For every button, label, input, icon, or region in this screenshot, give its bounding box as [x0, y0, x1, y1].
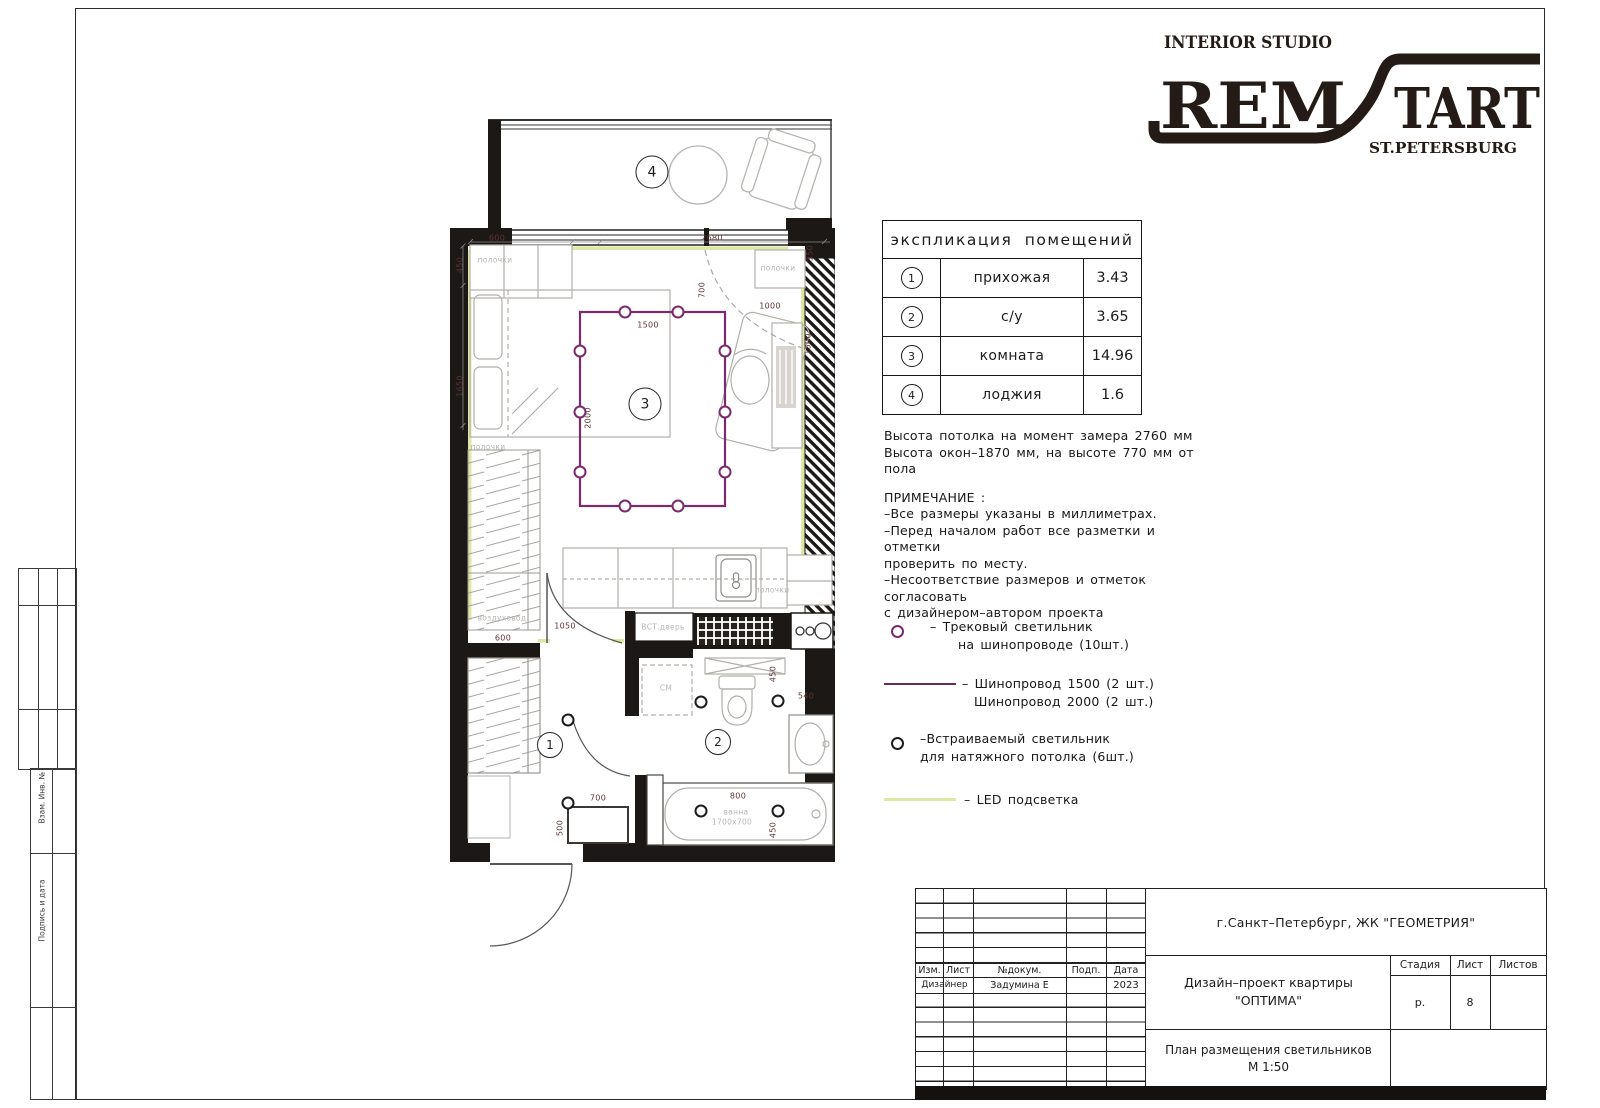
room-name: с/у: [941, 298, 1083, 336]
dimension-label: 1500: [637, 321, 659, 330]
explication-title: экспликация помещений: [883, 221, 1141, 259]
project-location: г.Санкт–Петербург, ЖК "ГЕОМЕТРИЯ": [1146, 889, 1546, 955]
busbar-legend-icon: [884, 683, 956, 685]
note-line: –Перед началом работ все разметки и отме…: [884, 523, 1214, 556]
project-name: Дизайн–проект квартиры "ОПТИМА": [1146, 955, 1391, 1029]
room-number-badge: 4: [901, 384, 923, 406]
note-line: проверить по месту.: [884, 556, 1214, 573]
legend-led: – LED подсветка: [964, 791, 1079, 809]
scale: М 1:50: [1248, 1059, 1289, 1076]
spot-light-symbol: [695, 696, 708, 709]
note-header: ПРИМЕЧАНИЕ :: [884, 490, 1214, 507]
dimension-label: 600: [489, 234, 505, 243]
remstart-logo: INTERIOR STUDIO REM TART ST.PETERSBURG: [1148, 26, 1548, 160]
room-name: комната: [941, 337, 1083, 375]
table-row: 1 прихожая 3.43: [883, 259, 1141, 298]
dimension-label: 350: [806, 245, 815, 261]
floor-plan: 6002680450165070035010001500150020006001…: [450, 118, 835, 953]
led-legend-icon: [884, 798, 956, 801]
plan-label: полочки: [478, 256, 513, 265]
room-number-badge: 3: [901, 345, 923, 367]
room-number-badge: 1: [901, 267, 923, 289]
col-header-podp: Подп.: [1066, 963, 1106, 977]
designer-name: Задумина Е: [973, 977, 1066, 993]
plan-label: 1700х700: [712, 818, 752, 827]
dimension-label: 540: [798, 692, 814, 701]
note-line: –Все размеры указаны в миллиметрах.: [884, 506, 1214, 523]
window-height-note: Высота окон–1870 мм, на высоте 770 мм от…: [884, 445, 1214, 478]
stage-label: Стадия: [1390, 955, 1450, 975]
col-header-list: Лист: [943, 963, 973, 977]
dimension-label: 600: [495, 634, 511, 643]
logo-brand-right: TART: [1394, 76, 1540, 142]
logo-city: ST.PETERSBURG: [1369, 140, 1517, 157]
dimension-label: 800: [730, 792, 746, 801]
spot-light-symbol: [772, 805, 785, 818]
dimension-label: 1500: [804, 333, 813, 355]
room-name: прихожая: [941, 259, 1083, 297]
margin-stamp-grid: [18, 568, 77, 770]
track-light-symbol: [672, 500, 685, 513]
sheet-value: 8: [1450, 975, 1490, 1029]
legend-track-light: – Трековый светильник на шинопроводе (10…: [930, 618, 1129, 653]
plan-label: ванна: [724, 808, 749, 817]
track-light-legend-icon: [891, 625, 904, 638]
spot-light-symbol: [772, 695, 785, 708]
dimension-label: 450: [769, 666, 778, 682]
dimension-label: 450: [456, 257, 465, 273]
dimension-label: 2680: [701, 234, 723, 243]
recessed-light-legend-icon: [891, 737, 904, 750]
plan-overlay: 6002680450165070035010001500150020006001…: [450, 118, 835, 953]
room-name: лоджия: [941, 376, 1083, 414]
dimension-label: 700: [698, 282, 707, 298]
note-line: –Несоответствие размеров и отметок согла…: [884, 572, 1214, 605]
track-light-symbol: [719, 466, 732, 479]
document-title: План размещения светильников М 1:50: [1146, 1029, 1391, 1089]
track-light-symbol: [574, 345, 587, 358]
room-number-marker: 2: [705, 729, 731, 755]
title-block: Изм. Лист №докум. Подп. Дата Дизайнер За…: [915, 888, 1547, 1090]
margin-stamp-strip: Взам. Инв. № Подпись и дата: [30, 768, 77, 1100]
room-number-marker: 1: [537, 732, 563, 758]
sheets-value: [1490, 975, 1546, 1029]
ceiling-height-note: Высота потолка на момент замера 2760 мм: [884, 428, 1214, 445]
dimension-label: 1000: [759, 302, 781, 311]
plan-label: полочки: [471, 443, 506, 452]
room-area: 3.43: [1083, 259, 1141, 297]
room-number-badge: 2: [901, 306, 923, 328]
stage-value: р.: [1390, 975, 1450, 1029]
designer-date: 2023: [1106, 977, 1146, 993]
dimension-label: 450: [769, 822, 778, 838]
col-header-izm: Изм.: [916, 963, 943, 977]
col-header-date: Дата: [1106, 963, 1146, 977]
room-number-marker: 3: [629, 388, 662, 421]
room-area: 14.96: [1083, 337, 1141, 375]
room-number-marker: 4: [636, 156, 669, 189]
sheet-label: Лист: [1450, 955, 1490, 975]
sheets-label: Листов: [1490, 955, 1546, 975]
dimension-label: 1650: [456, 375, 465, 397]
plan-label: полочки: [761, 264, 796, 273]
table-row: 3 комната 14.96: [883, 337, 1141, 376]
drawing-sheet: Взам. Инв. № Подпись и дата INTERIOR STU…: [0, 0, 1600, 1108]
track-light-symbol: [574, 466, 587, 479]
table-row: 2 с/у 3.65: [883, 298, 1141, 337]
spot-light-symbol: [695, 805, 708, 818]
track-light-symbol: [619, 500, 632, 513]
col-header-dok: №докум.: [973, 963, 1066, 977]
stamp-label-vzam: Взам. Инв. №: [38, 804, 47, 824]
logo-brand-left: REM: [1160, 69, 1346, 144]
legend-recessed-light: –Встраиваемый светильник для натяжного п…: [920, 730, 1134, 765]
legend-busbar: – Шинопровод 1500 (2 шт.) Шинопровод 200…: [962, 675, 1154, 710]
room-area: 3.65: [1083, 298, 1141, 336]
stamp-label-podpis: Подпись и дата: [38, 922, 47, 942]
plan-label: СМ: [660, 684, 672, 693]
plan-label: полочки: [755, 586, 790, 595]
dimension-label: 700: [590, 794, 606, 803]
track-light-symbol: [574, 406, 587, 419]
logo-tagline: INTERIOR STUDIO: [1164, 33, 1332, 53]
plan-label: воздуховод: [478, 614, 527, 623]
room-explication-table: экспликация помещений 1 прихожая 3.43 2 …: [882, 220, 1142, 415]
table-row: 4 лоджия 1.6: [883, 376, 1141, 414]
track-light-symbol: [719, 406, 732, 419]
dimension-label: 500: [556, 820, 565, 836]
notes-block: Высота потолка на момент замера 2760 мм …: [884, 428, 1214, 622]
plan-label: ВСТ.дверь: [641, 623, 684, 632]
spot-light-symbol: [562, 797, 575, 810]
title-block-bottom-bar: [915, 1086, 1546, 1100]
track-light-symbol: [719, 345, 732, 358]
designer-role: Дизайнер: [916, 977, 973, 993]
room-area: 1.6: [1083, 376, 1141, 414]
dimension-label: 1050: [554, 622, 576, 631]
spot-light-symbol: [562, 714, 575, 727]
track-light-symbol: [672, 306, 685, 319]
track-light-symbol: [619, 306, 632, 319]
